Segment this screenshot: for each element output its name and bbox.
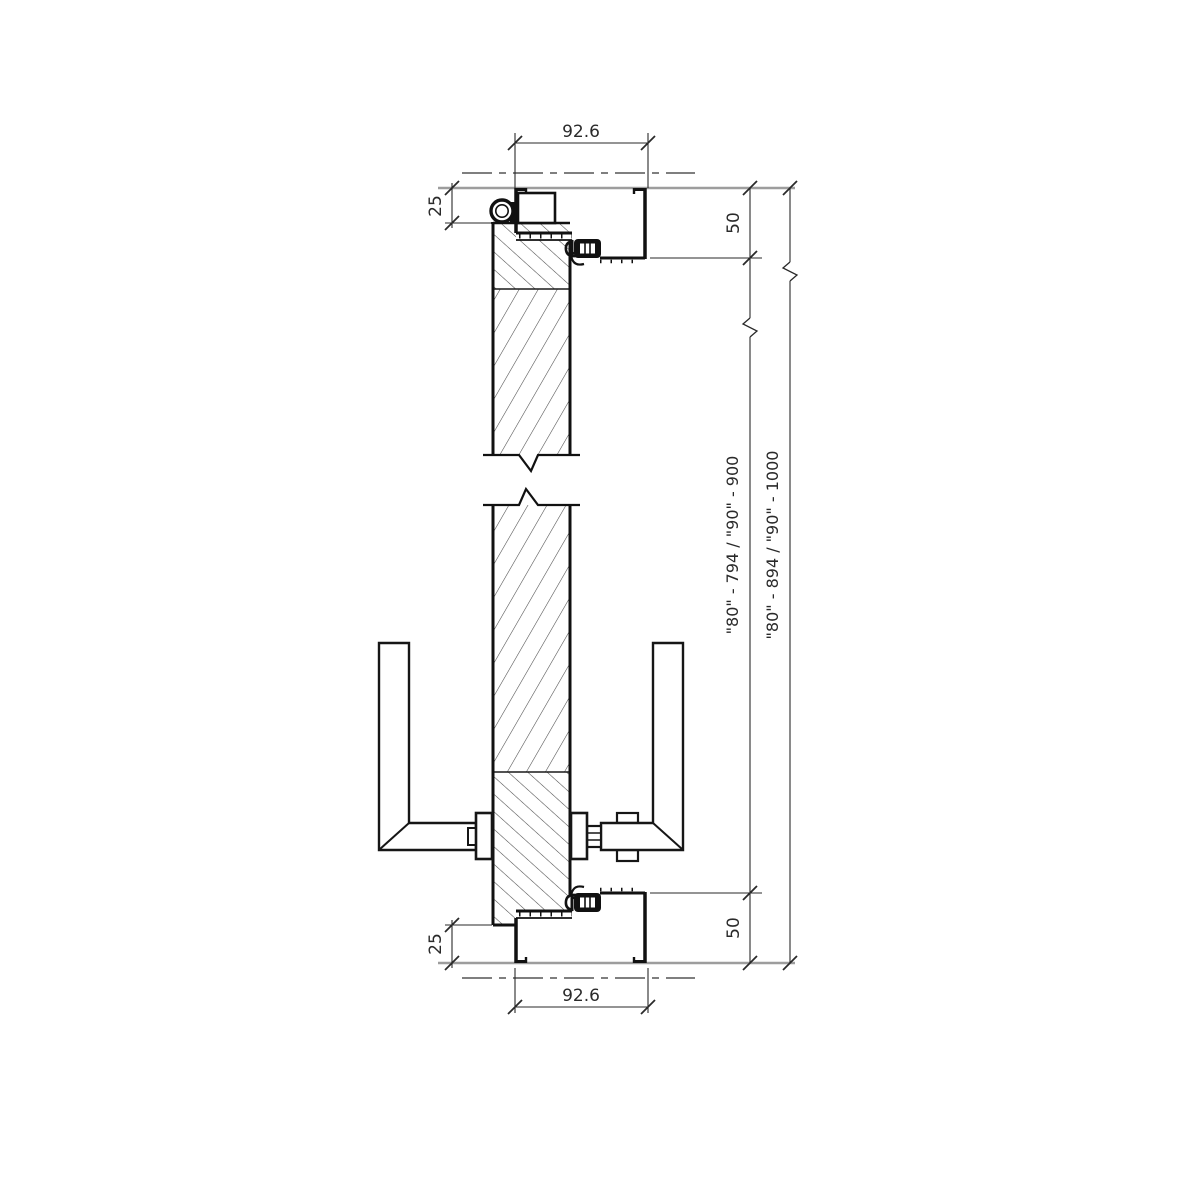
top-seal-inset [580, 244, 595, 254]
right-handle [571, 643, 683, 861]
label-top-offset: 25 [426, 195, 446, 217]
bottom-frame-stop-fill [517, 911, 572, 929]
label-overall-height: "80" - 894 / "90" - 1000 [763, 451, 782, 640]
break-symbol [783, 262, 797, 281]
door-core-upper-section [493, 289, 570, 455]
right-handle-rose [571, 813, 587, 859]
door-leaf [493, 222, 570, 925]
label-bottom-offset: 25 [426, 933, 446, 955]
door-section-drawing: 92.6 92.6 25 25 50 50 "80" - 794 / "90" … [0, 0, 1200, 1200]
right-handle-body [601, 643, 683, 850]
right-handle-tab-top [617, 813, 638, 823]
dim-line-overall [783, 181, 797, 970]
left-handle-body [379, 643, 476, 850]
left-handle-rose [476, 813, 492, 859]
dimension-labels: 92.6 92.6 25 25 50 50 "80" - 794 / "90" … [426, 122, 782, 1006]
break-line-upper [483, 455, 580, 471]
right-handle-nut [587, 826, 601, 847]
hinge-barrel-inner [496, 205, 508, 217]
break-symbol [743, 318, 757, 337]
break-line-lower [483, 489, 580, 505]
label-opening-height: "80" - 794 / "90" - 900 [723, 456, 742, 635]
break-lines [483, 455, 580, 505]
door-core-lower-section [493, 505, 570, 772]
dim-line-opening [743, 181, 757, 970]
label-top-width: 92.6 [562, 122, 600, 142]
label-bottom-frame-height: 50 [724, 917, 744, 939]
label-top-frame-height: 50 [724, 212, 744, 234]
technical-drawing-canvas: 92.6 92.6 25 25 50 50 "80" - 794 / "90" … [0, 0, 1200, 1200]
left-handle [379, 643, 492, 859]
door-bottom-rail-section [493, 772, 570, 925]
right-handle-tab-bottom [617, 850, 638, 861]
hinge-leaf [518, 193, 555, 223]
bottom-seal-inset [580, 898, 595, 908]
hinge [491, 193, 555, 223]
label-bottom-width: 92.6 [562, 986, 600, 1006]
